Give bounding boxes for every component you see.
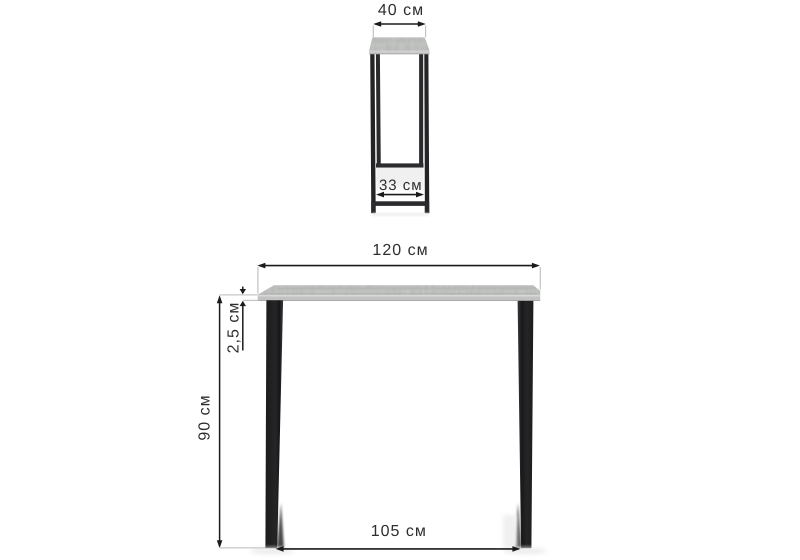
svg-text:120 см: 120 см — [372, 242, 428, 259]
svg-text:40 см: 40 см — [378, 2, 424, 19]
svg-text:2,5 см: 2,5 см — [226, 302, 243, 354]
svg-text:33 см: 33 см — [379, 177, 423, 194]
svg-text:105 см: 105 см — [371, 523, 427, 540]
svg-text:90 см: 90 см — [197, 394, 214, 440]
